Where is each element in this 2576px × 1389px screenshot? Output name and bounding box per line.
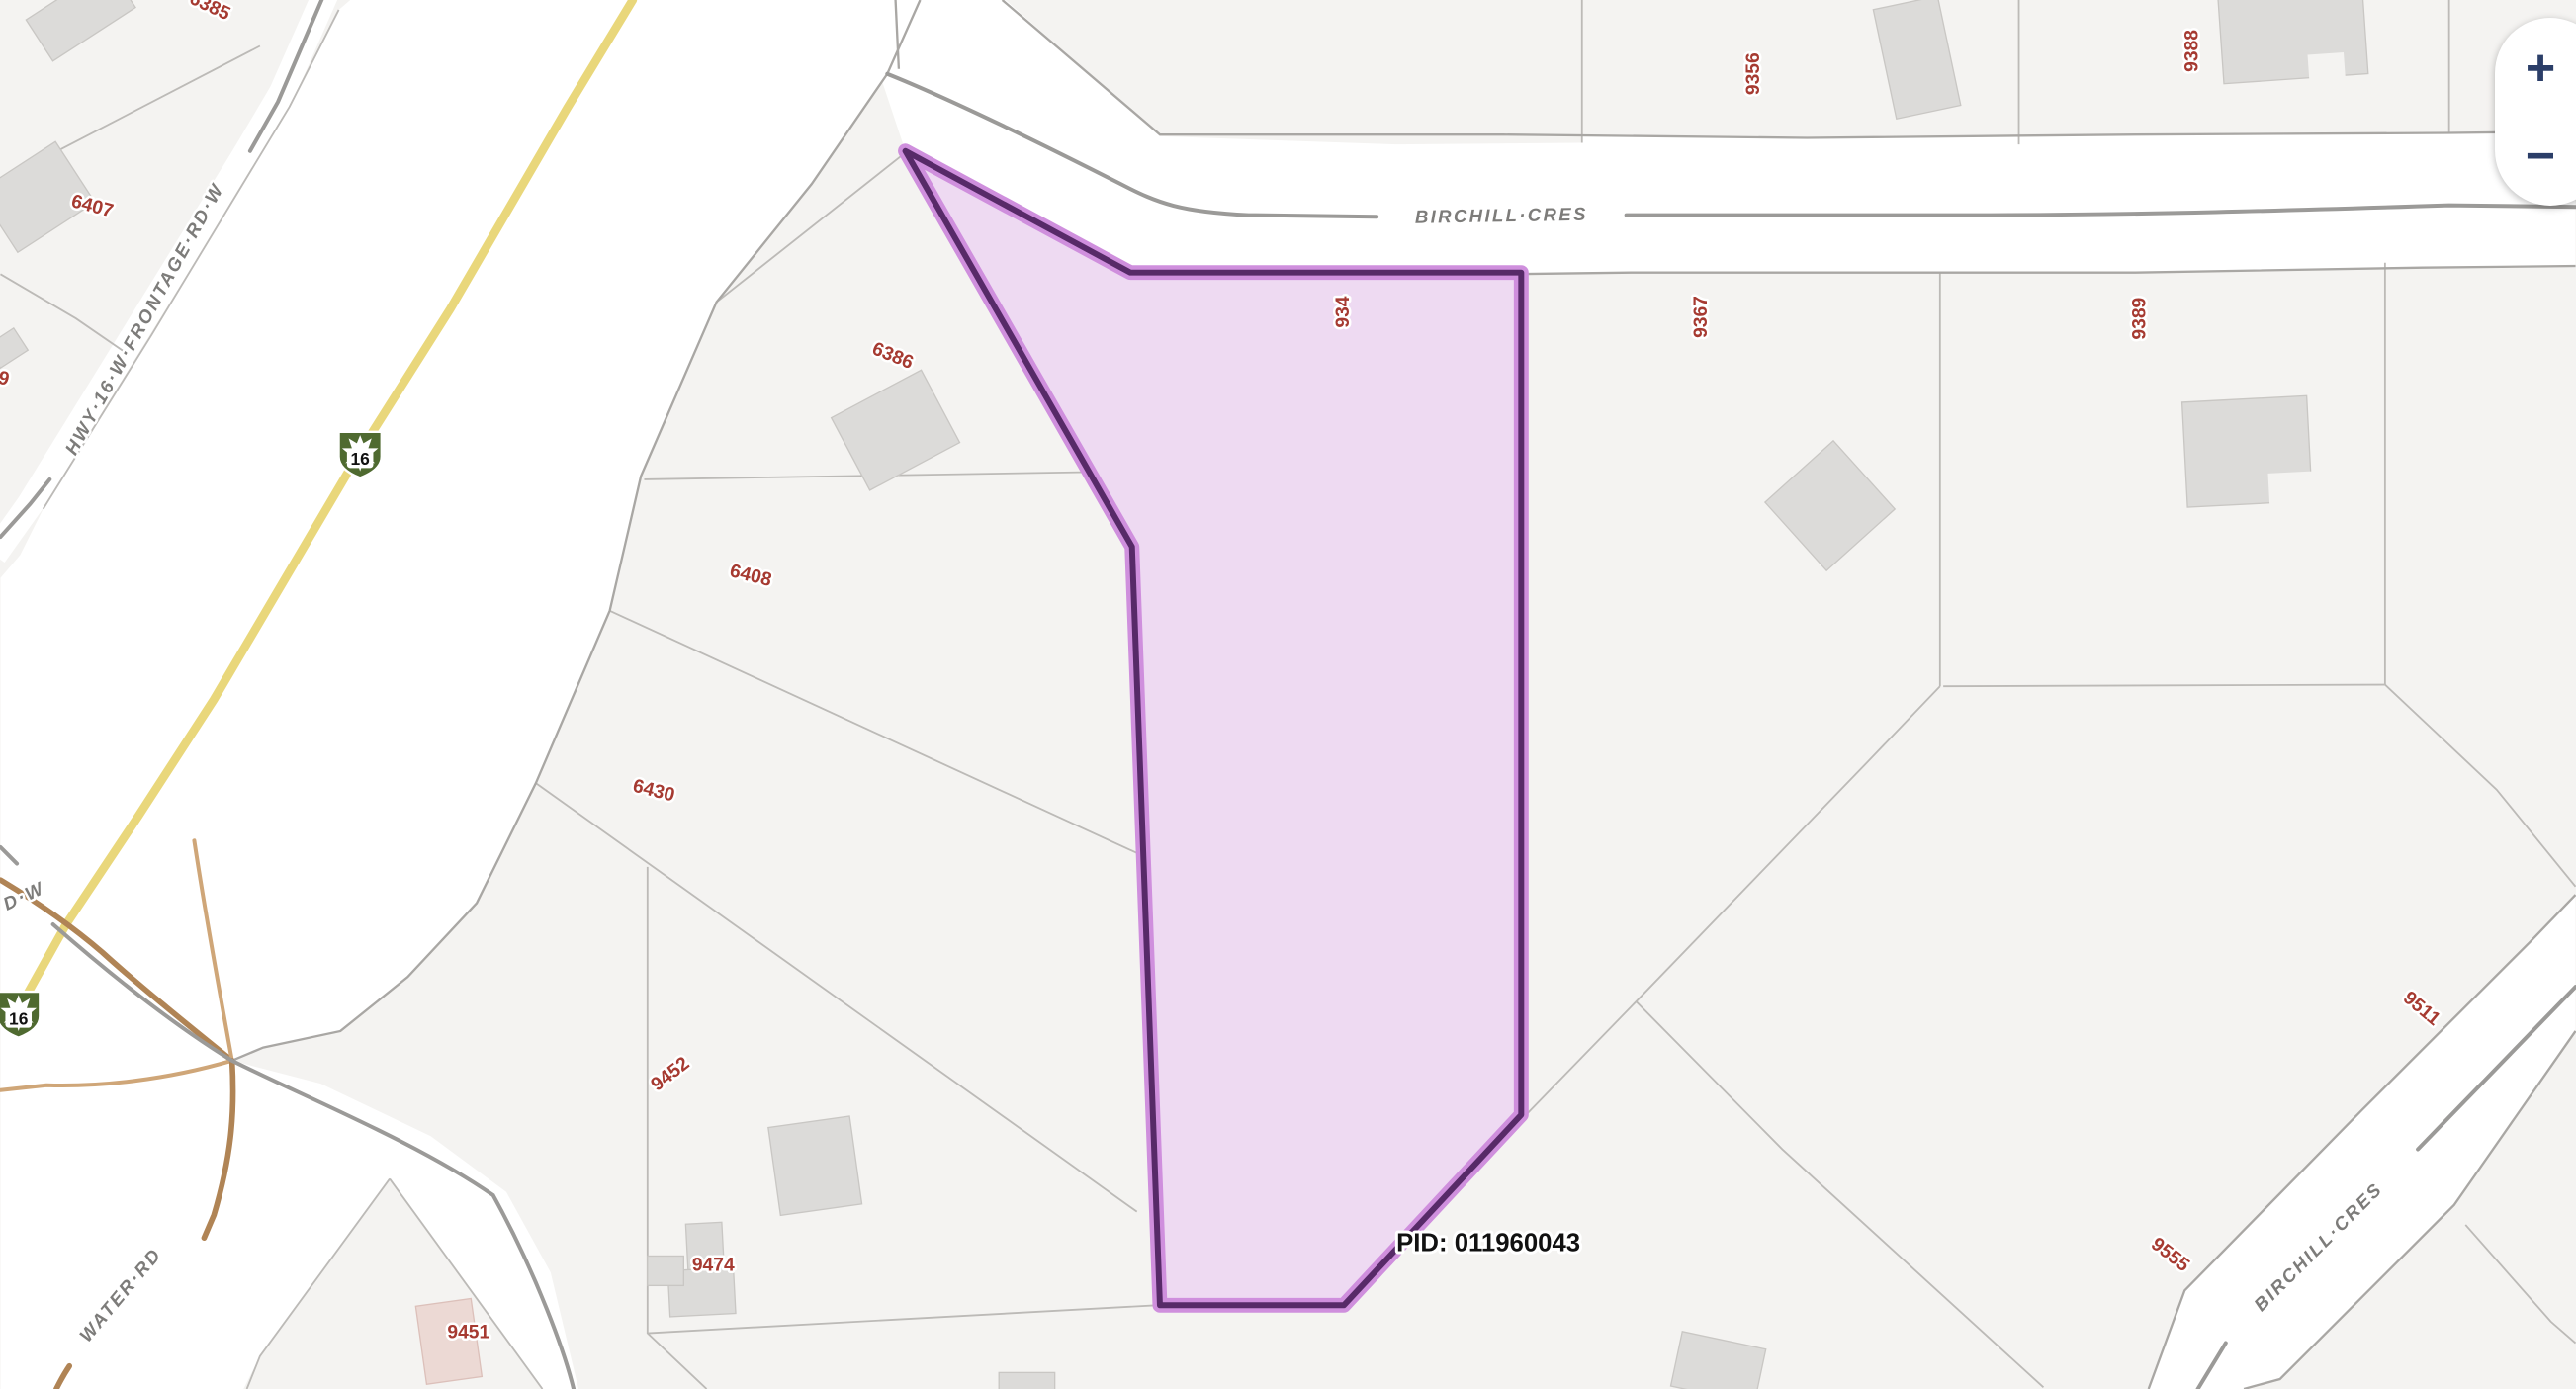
building (832, 370, 960, 490)
building (999, 1372, 1054, 1389)
pid-label: PID: 011960043 (1396, 1229, 1580, 1257)
parcel-label-6386: 6386 (869, 339, 917, 375)
parcel-label-9511: 9511 (2399, 988, 2444, 1030)
building (1873, 0, 1960, 119)
parcel-label-934: 934 (1333, 296, 1354, 327)
parcel-label-6430: 6430 (631, 776, 677, 807)
building-notch (2268, 471, 2316, 506)
parcel-label-9356: 9356 (1743, 52, 1764, 95)
zoom-control: + − (2495, 18, 2576, 206)
parcel-label-6408: 6408 (728, 561, 774, 591)
building (0, 328, 28, 368)
building (26, 0, 135, 61)
zoom-out-button[interactable]: − (2495, 112, 2576, 200)
zoom-in-button[interactable]: + (2495, 24, 2576, 112)
building (768, 1116, 862, 1215)
parcel-label-6407: 6407 (69, 191, 116, 221)
parcel-label-9474: 9474 (692, 1255, 735, 1275)
parcel-label-6385: 6385 (186, 0, 233, 25)
shield-number: 16 (350, 449, 370, 469)
parcel-label-9555: 9555 (2147, 1234, 2193, 1276)
shield-number: 16 (9, 1008, 29, 1028)
parcel-label-9-partial: 9 (0, 368, 11, 391)
parcel-label-9389: 9389 (2129, 298, 2150, 340)
parcel-label-9451: 9451 (447, 1323, 489, 1344)
map-viewport: 16 16 BIRCHILL·CRES BIRCHILL·CRES HWY·16… (0, 0, 2576, 1389)
road-label-birchill-top: BIRCHILL·CRES (1415, 204, 1588, 227)
building (648, 1256, 684, 1285)
building (2218, 0, 2368, 84)
building-notch (2308, 52, 2347, 84)
birchill-se-road-surface (2149, 895, 2576, 1389)
building (1671, 1332, 1766, 1389)
selected-parcel-highlight[interactable] (906, 151, 1522, 1306)
building (1765, 441, 1895, 570)
parcel-label-9388: 9388 (2182, 30, 2203, 72)
map-canvas[interactable]: 16 16 BIRCHILL·CRES BIRCHILL·CRES HWY·16… (0, 0, 2576, 1389)
parcel-label-9367: 9367 (1691, 296, 1712, 338)
parcel-label-9452: 9452 (648, 1053, 694, 1095)
